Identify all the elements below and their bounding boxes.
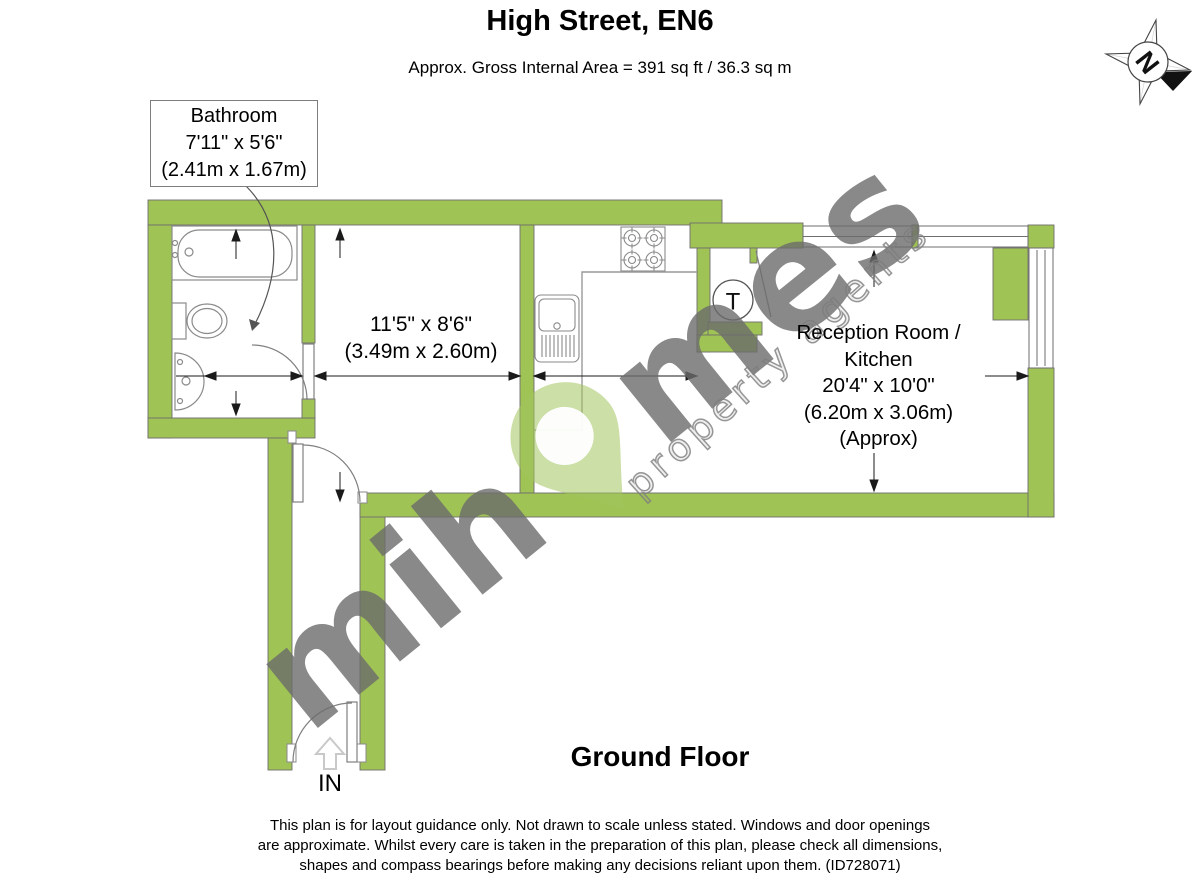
page-title: High Street, EN6 — [0, 5, 1200, 38]
floorplan-page: N T mih mes property agents High Street,… — [0, 0, 1200, 874]
chimney-breast — [993, 248, 1028, 320]
wall — [1028, 225, 1054, 248]
reception-name-line2: Kitchen — [776, 347, 981, 374]
hall-door-arc — [303, 445, 360, 502]
window — [1029, 248, 1053, 368]
entrance-label: IN — [303, 770, 357, 798]
bathroom-label-box: Bathroom 7'11" x 5'6" (2.41m x 1.67m) — [150, 100, 318, 187]
reception-size-metric: (6.20m x 3.06m) — [776, 400, 981, 427]
reception-name-line1: Reception Room / — [776, 320, 981, 347]
bathroom-door-arc — [252, 345, 307, 400]
wall — [302, 225, 315, 343]
stove — [621, 227, 665, 271]
floor-title: Ground Floor — [460, 741, 860, 773]
disclaimer-line3: shapes and compass bearings before makin… — [0, 856, 1200, 874]
wall — [148, 225, 172, 438]
hand-basin — [175, 353, 204, 410]
disclaimer-line2: are approximate. Whilst every care is ta… — [0, 836, 1200, 856]
room1-size-metric: (3.49m x 2.60m) — [321, 338, 521, 365]
bathroom-name: Bathroom — [151, 103, 317, 130]
reception-size-imperial: 20'4" x 10'0" — [776, 373, 981, 400]
bathroom-size-imperial: 7'11" x 5'6" — [151, 130, 317, 157]
wall — [148, 200, 722, 225]
reception-approx: (Approx) — [776, 426, 981, 453]
room1-label: 11'5" x 8'6" (3.49m x 2.60m) — [321, 311, 521, 365]
reception-label: Reception Room / Kitchen 20'4" x 10'0" (… — [776, 320, 981, 453]
toilet — [172, 303, 227, 339]
wall — [1028, 368, 1054, 517]
disclaimer-line1: This plan is for layout guidance only. N… — [0, 816, 1200, 836]
room1-size-imperial: 11'5" x 8'6" — [321, 311, 521, 338]
bathroom-door-leaf — [303, 344, 314, 399]
bathroom-size-metric: (2.41m x 1.67m) — [151, 157, 317, 184]
disclaimer: This plan is for layout guidance only. N… — [0, 816, 1200, 874]
wall — [302, 399, 315, 418]
hall-door-leaf — [293, 444, 303, 502]
area-subtitle: Approx. Gross Internal Area = 391 sq ft … — [0, 58, 1200, 78]
